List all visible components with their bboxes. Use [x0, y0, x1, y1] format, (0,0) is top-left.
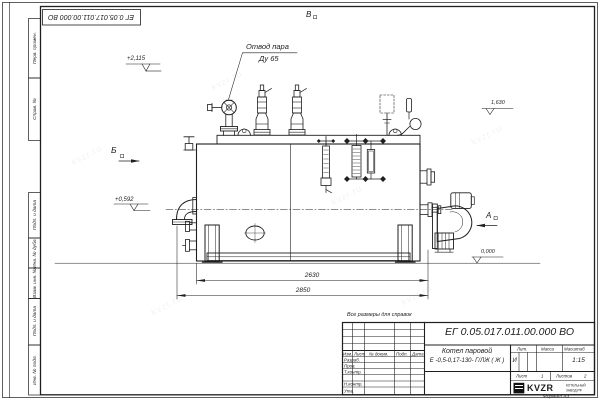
- logo-caption-line1: КОТЕЛЬНЫЙ: [566, 384, 586, 387]
- stamp-sheets-label: Листов: [556, 374, 572, 378]
- elevation-right-label: 1,630: [491, 101, 505, 107]
- pressure-gauge: [380, 95, 394, 135]
- reference-note: Все размеры для справок: [347, 312, 412, 317]
- stamp-row-razrab: Разраб.: [344, 358, 360, 362]
- stamp-col-izm: Изм.: [343, 352, 352, 356]
- stamp-sheet-label: Лист: [516, 374, 527, 378]
- logo-caption-line2: ЗАВОД.РФ: [566, 389, 582, 392]
- stamp-sheet-number: 1: [541, 374, 543, 378]
- view-label-a: А: [486, 212, 491, 220]
- safety-valve: [254, 85, 272, 135]
- doc-number-top: ЕГ 0.05.017.011.00.000 ВО: [42, 9, 140, 24]
- stamp-col-podp: Подп.: [396, 352, 408, 356]
- margin-label-perv-primen: Перв. примен.: [32, 32, 37, 64]
- water-level-gauge: [317, 137, 335, 193]
- stamp-scale: 1:15: [563, 358, 595, 365]
- stamp-mass-header: Масса: [541, 347, 554, 351]
- margin-label-sprav-no: Справ. №: [32, 98, 37, 120]
- steam-outlet-size: Ду 65: [259, 55, 279, 63]
- stamp-product-type: Е -0,5-0,17-130- Г/ЛЖ ( Ж ): [424, 358, 510, 364]
- stamp-product-name: Котел паровой: [424, 348, 510, 355]
- stamp-col-docnum: № докум.: [369, 352, 388, 356]
- format-note: Формат А3: [543, 394, 569, 399]
- view-label-b: Б: [111, 146, 117, 155]
- margin-label-podp-data-1: Подп. и дата: [32, 200, 37, 230]
- stamp-doc-number: ЕГ 0.05.017.011.00.000 ВО: [424, 327, 595, 338]
- steam-outlet-label: Отвод пара: [246, 43, 289, 51]
- stamp-scale-header: Масштаб: [564, 347, 585, 351]
- kvzr-logo-text: KVZR: [527, 384, 554, 393]
- stamp-row-prov: Пров.: [344, 364, 356, 368]
- view-arrows: [119, 16, 497, 228]
- steam-outlet-valve: [208, 100, 238, 135]
- boiler-shell: [197, 135, 421, 261]
- stamp-col-list: Лист: [354, 352, 365, 356]
- stamp-row-tkontr: Т.контр.: [344, 370, 362, 374]
- manhole: [245, 224, 266, 243]
- dim-label-2850: 2850: [296, 288, 310, 295]
- elevation-zero-label: 0,000: [481, 250, 495, 256]
- stamp-litera: И: [513, 358, 517, 364]
- margin-label-podp-data-2: Подп. и дата: [32, 306, 37, 336]
- water-level-columns: [344, 135, 386, 183]
- stamp-row-utv: Утв.: [344, 389, 354, 393]
- feed-elbow: [173, 198, 197, 225]
- margin-label-inv-dubl: Инв. № дубл.: [32, 238, 37, 268]
- elevation-top-label: +2,115: [127, 56, 145, 62]
- left-wall-fittings: [184, 137, 196, 150]
- frame-border: [3, 3, 598, 398]
- stamp-sheets-total: 2: [584, 374, 586, 378]
- support-legs: [203, 225, 416, 262]
- drawing-sheet: kvzr.ru kvzr.ru kvzr.ru kvzr.ru kvzr.ru …: [0, 0, 600, 400]
- elevation-mid-label: +0,592: [115, 197, 134, 203]
- drain-nozzles: [183, 221, 197, 251]
- margin-label-vzam-inv: Взам. инв. №: [32, 268, 37, 298]
- stamp-col-data: Дата: [412, 352, 424, 356]
- stamp-row-nkontr: Н.контр.: [344, 382, 363, 386]
- margin-label-inv-podl: Инв. № подл.: [32, 355, 37, 385]
- burner: [433, 193, 475, 252]
- view-label-v: В: [306, 11, 311, 19]
- drawing-canvas: [0, 0, 600, 400]
- level-electrode: [407, 99, 412, 120]
- stamp-litera-header: Лит.: [517, 347, 527, 351]
- safety-valve: [289, 85, 307, 135]
- dim-label-2630: 2630: [305, 273, 319, 280]
